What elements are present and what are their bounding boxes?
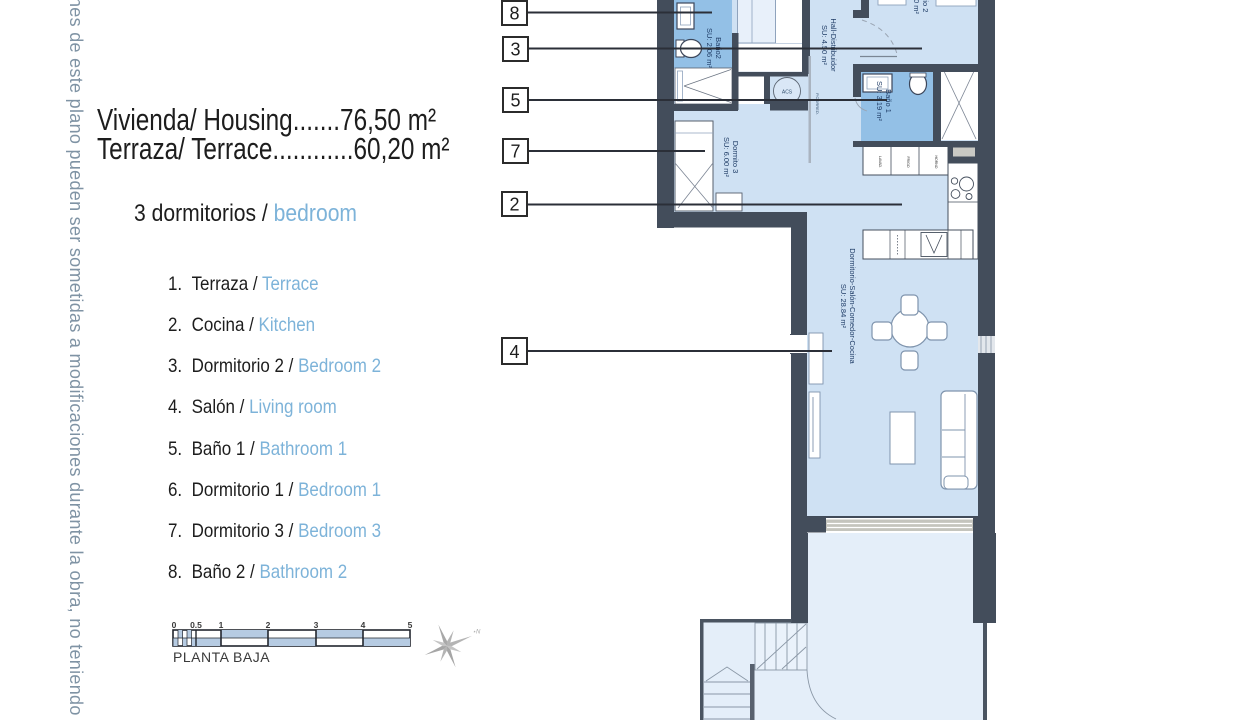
svg-text:5: 5 — [408, 620, 413, 630]
svg-text:3: 3 — [510, 40, 520, 60]
svg-text:3: 3 — [314, 620, 319, 630]
svg-text:⋆N: ⋆N — [472, 630, 481, 636]
svg-text:0.5: 0.5 — [190, 620, 202, 630]
svg-text:ACS: ACS — [782, 90, 793, 96]
svg-text:SU: 28.84 m²: SU: 28.84 m² — [839, 284, 848, 329]
svg-text:2: 2 — [266, 620, 271, 630]
svg-text:8: 8 — [509, 4, 519, 24]
svg-text:SU: 4.50 m²: SU: 4.50 m² — [820, 25, 829, 66]
svg-text:SU: 6.00 m²: SU: 6.00 m² — [722, 137, 731, 178]
svg-text:HORNO: HORNO — [934, 155, 938, 168]
svg-text:2: 2 — [509, 195, 519, 215]
svg-text:1: 1 — [219, 620, 224, 630]
svg-text:5: 5 — [510, 91, 520, 111]
svg-text:7: 7 — [510, 142, 520, 162]
svg-text:P.CORRED.: P.CORRED. — [815, 93, 820, 115]
svg-text:LAVAD.: LAVAD. — [878, 156, 882, 168]
svg-text:0: 0 — [172, 620, 177, 630]
svg-text:4: 4 — [509, 342, 519, 362]
svg-text:Dormitorio 2: Dormitorio 2 — [921, 0, 930, 12]
svg-text:Dormitorio-Salón-Comedor-Cocin: Dormitorio-Salón-Comedor-Cocina — [848, 248, 857, 364]
svg-text:Hall-Distribuidor: Hall-Distribuidor — [829, 18, 838, 72]
svg-text:4: 4 — [361, 620, 366, 630]
svg-text:SU: 3.19 m²: SU: 3.19 m² — [875, 81, 884, 122]
svg-text:Dormito 3: Dormito 3 — [731, 141, 740, 174]
svg-text:PLANTA BAJA: PLANTA BAJA — [173, 649, 270, 665]
svg-text:SU: 7.50 m²: SU: 7.50 m² — [912, 0, 921, 15]
svg-text:FRIGO: FRIGO — [906, 156, 910, 167]
